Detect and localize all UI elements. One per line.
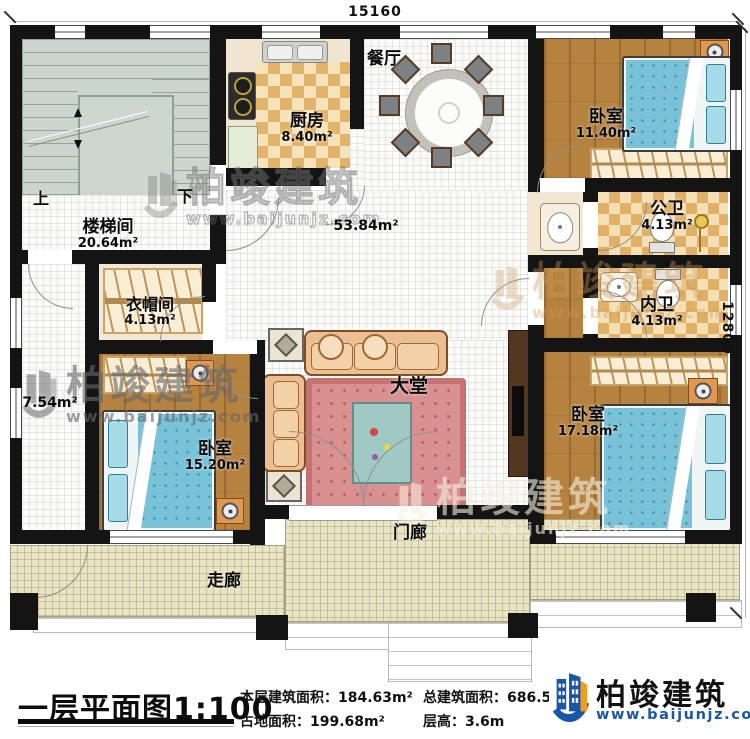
room-label-kitchen: 厨房 8.40m² bbox=[262, 112, 352, 145]
pillar bbox=[686, 593, 716, 622]
window bbox=[55, 25, 85, 39]
wall bbox=[528, 338, 742, 352]
steps bbox=[285, 622, 390, 650]
closet bbox=[590, 148, 728, 180]
nightstand bbox=[688, 378, 718, 404]
bed-pillow bbox=[108, 474, 128, 522]
washbasin bbox=[540, 203, 580, 251]
door-opening bbox=[28, 250, 72, 264]
nightstand bbox=[216, 498, 244, 524]
steps bbox=[33, 617, 287, 633]
bed-pillow bbox=[108, 420, 128, 468]
stat-value: 3.6m bbox=[465, 714, 504, 730]
burner-icon bbox=[234, 77, 252, 95]
stat-value: 199.68m² bbox=[310, 714, 385, 730]
window bbox=[110, 530, 233, 544]
stat-label: 总建筑面积： bbox=[423, 690, 507, 706]
stove bbox=[228, 72, 256, 120]
room-label-porch: 门廊 bbox=[378, 524, 442, 543]
wall bbox=[528, 25, 544, 192]
round-pillow bbox=[362, 334, 388, 360]
round-pillow bbox=[318, 334, 344, 360]
flower-icon bbox=[370, 428, 378, 436]
dining-chair bbox=[431, 147, 452, 168]
bed-pillow bbox=[705, 414, 726, 464]
wall bbox=[85, 264, 99, 530]
window bbox=[150, 25, 210, 39]
window bbox=[10, 298, 22, 348]
room-label-staircase: 楼梯间 20.64m² bbox=[48, 218, 168, 251]
stair-landing bbox=[78, 95, 174, 197]
side-table bbox=[268, 328, 304, 362]
label-stairs-up: 上 bbox=[28, 190, 54, 208]
window bbox=[556, 530, 685, 544]
stat-label: 本层建筑面积： bbox=[240, 690, 338, 706]
room-label-bedroom-left: 卧室 15.20m² bbox=[168, 440, 262, 473]
room-label-hall: 大堂 bbox=[378, 376, 440, 397]
window bbox=[400, 25, 488, 39]
stat-label: 层高： bbox=[423, 714, 465, 730]
label-stairs-down: 下 bbox=[172, 188, 198, 206]
floor-plan: 柏竣建筑 www.baijunjz.com 柏竣建筑 www.baijunjz.… bbox=[0, 0, 750, 739]
wall bbox=[10, 25, 22, 544]
room-label-bedroom-right: 卧室 17.18m² bbox=[536, 406, 640, 439]
window bbox=[536, 25, 610, 39]
pillar bbox=[256, 615, 288, 640]
dimension-line-right bbox=[745, 28, 746, 618]
stair-arrow-up-icon bbox=[74, 108, 82, 117]
closet bbox=[103, 356, 187, 394]
window bbox=[663, 25, 695, 39]
wall bbox=[210, 25, 226, 165]
sink-basin bbox=[267, 45, 293, 60]
stat-floor-height: 层高：3.6m bbox=[423, 711, 504, 731]
label-hall-area: 53.84m² bbox=[330, 219, 402, 234]
room-label-corridor: 走廊 bbox=[192, 572, 256, 591]
sink-basin bbox=[297, 45, 323, 60]
window bbox=[262, 25, 320, 39]
room-label-inner-bath: 内卫 4.13m² bbox=[620, 296, 694, 329]
dining-chair bbox=[483, 95, 504, 116]
wall bbox=[10, 25, 742, 39]
bed-pillow bbox=[706, 106, 726, 144]
kitchen-sink bbox=[262, 41, 328, 63]
label-side-area: 7.54m² bbox=[18, 396, 82, 411]
dimension-top: 15160 bbox=[330, 4, 420, 20]
floor-bedroom-right-strip bbox=[544, 268, 583, 338]
pillar bbox=[10, 593, 38, 630]
wall bbox=[250, 519, 265, 545]
stair-arrow-down-icon bbox=[74, 140, 82, 149]
wall bbox=[583, 192, 598, 202]
title-underline bbox=[18, 719, 234, 724]
room-label-public-bath: 公卫 4.13m² bbox=[630, 200, 704, 233]
door-opening bbox=[213, 340, 257, 354]
wall bbox=[226, 168, 326, 186]
window bbox=[730, 90, 742, 150]
nightstand bbox=[186, 360, 214, 386]
stat-total-area: 总建筑面积：686.50 bbox=[423, 687, 561, 707]
stat-floor-area: 本层建筑面积：184.63m² bbox=[240, 687, 413, 707]
room-label-bedroom-top: 卧室 11.40m² bbox=[560, 108, 652, 141]
tv-icon bbox=[512, 386, 524, 436]
flower-icon bbox=[372, 454, 378, 460]
wall bbox=[528, 255, 742, 268]
brand-logo-icon bbox=[549, 668, 591, 728]
tv-cabinet bbox=[508, 330, 530, 477]
stat-value: 184.63m² bbox=[338, 690, 413, 706]
floor-dining-patch bbox=[350, 129, 364, 190]
bed-pillow bbox=[706, 64, 726, 102]
stat-land-area: 占地面积：199.68m² bbox=[240, 711, 385, 731]
burner-icon bbox=[234, 98, 252, 116]
dining-chair bbox=[431, 43, 452, 64]
dimension-line-top bbox=[12, 21, 740, 22]
room-label-cloakroom: 衣帽间 4.13m² bbox=[106, 296, 194, 328]
stat-label: 占地面积： bbox=[240, 714, 310, 730]
bed-pillow bbox=[705, 470, 726, 520]
dining-chair bbox=[379, 95, 400, 116]
fridge bbox=[228, 126, 258, 170]
wall bbox=[528, 255, 544, 272]
title-underline-thin bbox=[18, 726, 234, 727]
table-center bbox=[438, 102, 460, 124]
room-label-dining: 餐厅 bbox=[352, 50, 416, 69]
entry-door-threshold bbox=[289, 505, 437, 521]
brand-url: www.baijunjz.com bbox=[596, 707, 750, 723]
dimension-tick bbox=[4, 11, 17, 24]
door-opening bbox=[210, 165, 226, 215]
pillar bbox=[508, 613, 538, 638]
dimension-right: 12800 bbox=[719, 283, 735, 373]
